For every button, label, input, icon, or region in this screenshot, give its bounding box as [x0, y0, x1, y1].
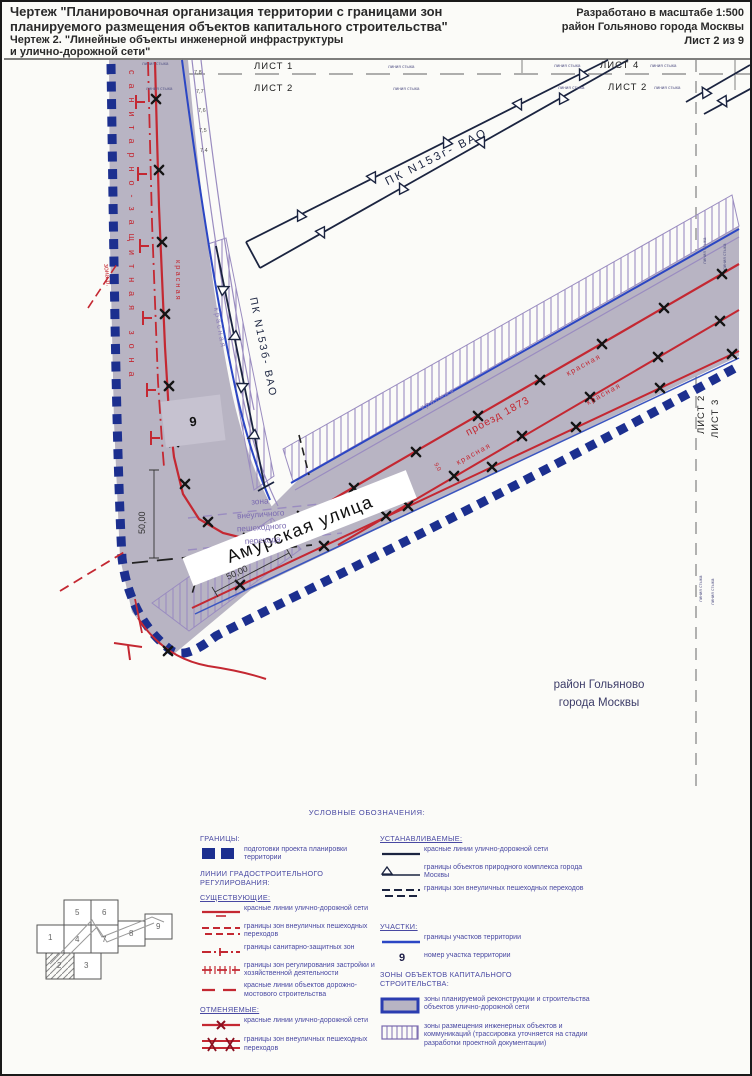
legend-established-header: УСТАНАВЛИВАЕМЫЕ:	[380, 834, 605, 843]
svg-text:линия стыка: линия стыка	[142, 61, 169, 66]
pk-band-upper-markers	[293, 67, 731, 240]
plot-number-icon: 9	[380, 952, 424, 964]
legend-item: границы зон внеуличных пешеходных перехо…	[380, 885, 605, 900]
legend-title: УСЛОВНЫЕ ОБОЗНАЧЕНИЯ:	[237, 808, 497, 817]
legend-zones-header: ЗОНЫ ОБЪЕКТОВ КАПИТАЛЬНОГО СТРОИТЕЛЬСТВА…	[380, 970, 540, 988]
legend-lines-header: ЛИНИИ ГРАДОСТРОИТЕЛЬНОГО РЕГУЛИРОВАНИЯ:	[200, 869, 378, 887]
legend-item: 9 номер участка территории	[380, 952, 605, 964]
svg-text:линия стыка: линия стыка	[698, 575, 703, 602]
sanitary-boundary-icon	[200, 945, 244, 958]
reconstruction-zone-swatch	[380, 997, 424, 1015]
boundary-squares-icon	[200, 847, 244, 860]
plan-sheet: Чертеж "Планировочная организация террит…	[0, 0, 752, 1076]
legend-item: зоны размещения инженерных объектов и ко…	[380, 1023, 605, 1048]
legend-item: красные линии объектов дорожно-мостового…	[200, 982, 378, 999]
svg-text:7,7: 7,7	[196, 89, 204, 95]
plot-boundary-icon	[380, 935, 424, 948]
svg-text:линия стыка: линия стыка	[558, 85, 585, 90]
svg-text:линия стыка: линия стыка	[722, 243, 727, 270]
dim-50-label: 50,00	[137, 511, 147, 534]
svg-text:линия стыка: линия стыка	[393, 86, 420, 91]
svg-text:7: 7	[102, 935, 107, 944]
svg-text:6: 6	[102, 908, 107, 917]
legend-item: границы санитарно-защитных зон	[200, 944, 378, 958]
district-label-1: район Гольяново	[554, 679, 645, 691]
regulation-zone-icon	[200, 963, 244, 977]
legend-granicy-header: ГРАНИЦЫ:	[200, 834, 378, 843]
pk-upper-label: ПК N153г- ВАО	[383, 127, 489, 189]
sheet-label: ЛИСТ 1	[254, 61, 293, 72]
svg-text:9: 9	[156, 922, 161, 931]
sheet-label-vertical: ЛИСТ 2	[696, 395, 707, 434]
svg-text:5: 5	[75, 908, 80, 917]
road-bridge-red-line-icon	[200, 983, 244, 996]
svg-text:7,8: 7,8	[194, 70, 202, 76]
natural-complex-boundary-icon	[380, 865, 424, 879]
legend-right-column: УСТАНАВЛИВАЕМЫЕ: красные линии улично-до…	[380, 828, 605, 1052]
svg-text:7,5: 7,5	[199, 128, 207, 134]
legend-item: красные линии улично-дорожной сети	[200, 1017, 378, 1032]
sanitary-zone-label: санитарно-защитная зона	[127, 70, 137, 386]
key-map: 1 2 3 4 5 6 7 8 9	[37, 900, 172, 979]
legend-item: границы зон регулирования застройки и хо…	[200, 962, 378, 979]
svg-text:линия стыка: линия стыка	[388, 64, 415, 69]
parcel-9-box: 9	[160, 395, 225, 448]
svg-text:линия стыка: линия стыка	[702, 237, 707, 264]
legend-left-column: ГРАНИЦЫ: подготовки проекта планировки т…	[200, 828, 378, 1057]
established-red-line-icon	[380, 847, 424, 860]
cancelled-ped-boundary-icon	[200, 1037, 244, 1052]
legend-item: подготовки проекта планировки территории	[200, 846, 378, 863]
svg-text:зона: зона	[251, 496, 269, 506]
legend-cancelled-header: ОТМЕНЯЕМЫЕ:	[200, 1005, 378, 1014]
svg-text:7,4: 7,4	[200, 148, 208, 154]
svg-text:4: 4	[75, 935, 80, 944]
svg-text:2: 2	[57, 961, 62, 970]
engineering-zone-swatch	[380, 1024, 424, 1042]
svg-text:линия стыка: линия стыка	[146, 86, 173, 91]
legend-plots-header: УЧАСТКИ:	[380, 922, 605, 931]
ped-crossing-boundary-icon	[200, 924, 244, 938]
svg-text:8: 8	[129, 929, 134, 938]
svg-text:линия стыка: линия стыка	[650, 63, 677, 68]
cancelled-red-line-icon	[200, 1018, 244, 1032]
sheet-label: ЛИСТ 2	[608, 82, 647, 93]
legend-item: границы зон внеуличных пешеходных перехо…	[200, 923, 378, 940]
sheet-label-vertical: ЛИСТ 3	[710, 399, 721, 438]
legend-item: красные линии улично-дорожной сети	[200, 905, 378, 919]
red-line-icon	[200, 906, 244, 919]
svg-text:3: 3	[84, 961, 89, 970]
legend-item: зоны планируемой реконструкции и строите…	[380, 996, 605, 1015]
red-line-label: красная	[174, 260, 183, 302]
legend-item: красные линии улично-дорожной сети	[380, 846, 605, 860]
svg-text:линия стыка: линия стыка	[554, 63, 581, 68]
legend-item: границы объектов природного комплекса го…	[380, 864, 605, 881]
sheet-label: ЛИСТ 4	[600, 60, 639, 71]
established-ped-boundary-icon	[380, 886, 424, 900]
legend-item: границы зон внеуличных пешеходных перехо…	[200, 1036, 378, 1053]
svg-text:7,6: 7,6	[198, 108, 206, 114]
svg-text:1: 1	[48, 933, 53, 942]
svg-text:линия стыка: линия стыка	[710, 578, 715, 605]
district-label-2: города Москвы	[559, 697, 639, 709]
curve-value-labels: 7,8 7,7 7,6 7,5 7,4	[194, 70, 208, 154]
legend-item: границы участков территории	[380, 934, 605, 948]
svg-text:линия стыка: линия стыка	[654, 85, 681, 90]
sheet-label: ЛИСТ 2	[254, 83, 293, 94]
legend-existing-header: СУЩЕСТВУЮЩИЕ:	[200, 893, 378, 902]
